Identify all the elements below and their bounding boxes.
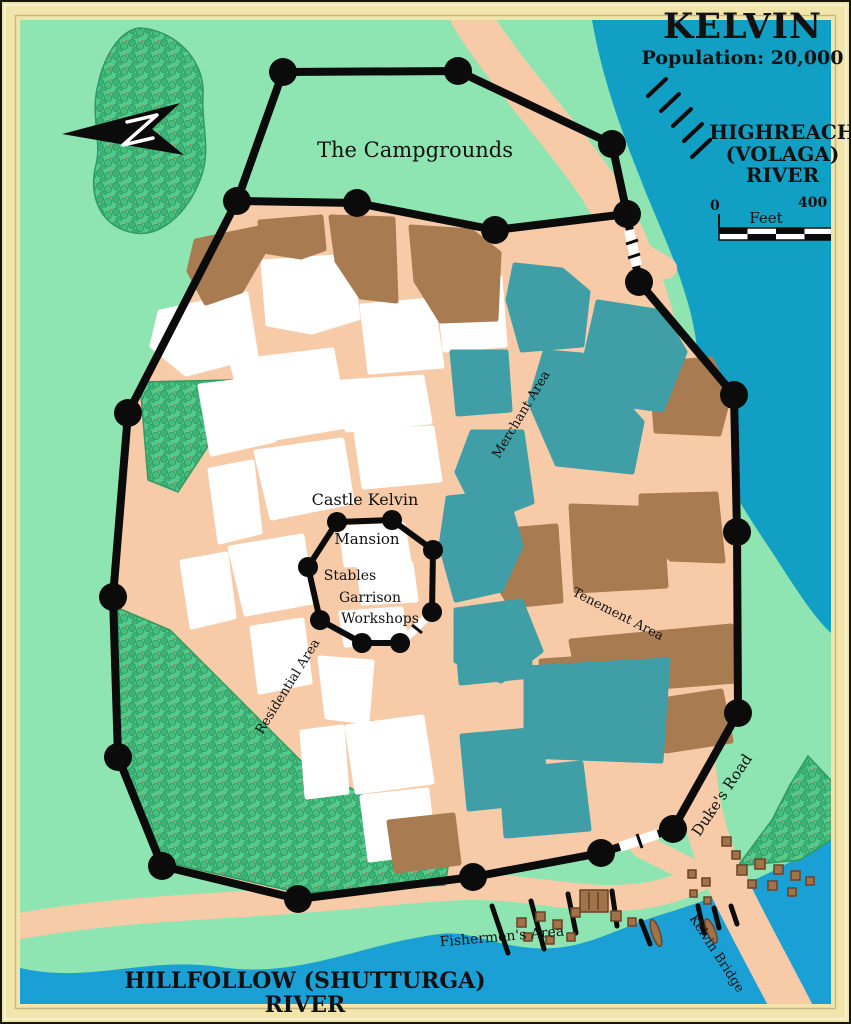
garrison-label: Garrison (320, 591, 420, 606)
south-river-label: HILLFOLLOW (SHUTTURGA) RIVER (85, 970, 525, 1018)
workshops-label: Workshops (325, 612, 435, 627)
scale-end-label: 400 (798, 196, 827, 211)
campgrounds-label: The Campgrounds (295, 139, 535, 162)
castle-label: Castle Kelvin (285, 491, 445, 508)
river-ne-line1: HIGHREACH (700, 122, 851, 144)
map-title: KELVIN (640, 8, 845, 46)
scale-unit-label: Feet (736, 210, 796, 226)
stables-label: Stables (305, 569, 395, 584)
river-ne-line2: (VOLAGA) (700, 144, 851, 166)
scale-start-label: 0 (710, 199, 720, 214)
northeast-river-label: HIGHREACH (VOLAGA) RIVER (700, 122, 851, 187)
population-label: Population: 20,000 (640, 48, 845, 69)
river-ne-line3: RIVER (700, 165, 851, 187)
mansion-label: Mansion (317, 531, 417, 547)
fantasy-city-map: KELVIN Population: 20,000 HIGHREACH (VOL… (0, 0, 851, 1024)
